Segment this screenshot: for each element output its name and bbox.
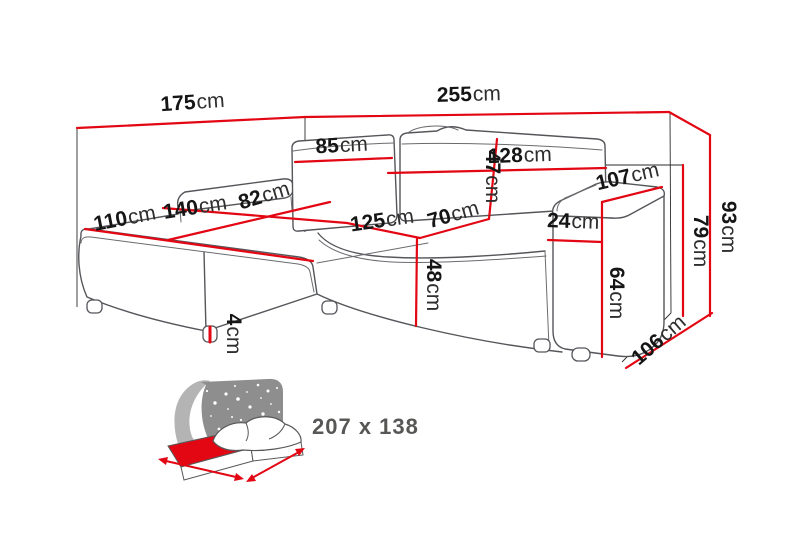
label-64cm: 64cm bbox=[605, 267, 628, 319]
sleeping-function-icon: 207 x 138 bbox=[158, 379, 419, 482]
label-85cm: 85cm bbox=[315, 133, 368, 159]
helper-line-right-vertical bbox=[670, 113, 671, 313]
dim-line-48 bbox=[416, 238, 417, 326]
label-4cm: 4cm bbox=[222, 314, 245, 355]
sofa-outline-drawing bbox=[79, 126, 665, 361]
label-48cm: 48cm bbox=[422, 259, 445, 311]
seat-front-edge bbox=[318, 233, 545, 258]
leg-middle bbox=[322, 301, 337, 314]
sofa-dimension-diagram: 175cm 255cm 85cm 128cm 47cm 107cm 82cm 1… bbox=[0, 0, 800, 533]
dim-line-255 bbox=[305, 112, 669, 117]
sleeping-area-dimensions: 207 x 138 bbox=[312, 414, 419, 439]
dim-line-top-right-corner bbox=[669, 112, 710, 135]
label-140cm: 140cm bbox=[162, 191, 229, 224]
leg-front-right bbox=[534, 339, 550, 352]
label-175cm: 175cm bbox=[160, 89, 225, 116]
label-47cm: 47cm bbox=[481, 151, 504, 203]
label-79cm: 79cm bbox=[689, 215, 712, 267]
label-93cm: 93cm bbox=[717, 201, 740, 253]
label-255cm: 255cm bbox=[437, 82, 502, 107]
diagram-canvas: 175cm 255cm 85cm 128cm 47cm 107cm 82cm 1… bbox=[0, 0, 800, 533]
dim-line-175 bbox=[77, 117, 305, 128]
label-24cm: 24cm bbox=[547, 209, 600, 234]
label-110cm: 110cm bbox=[92, 201, 158, 236]
seat-armrest-boundary bbox=[545, 251, 549, 347]
leg-armrest bbox=[572, 348, 590, 361]
leg-back-left bbox=[87, 300, 102, 313]
